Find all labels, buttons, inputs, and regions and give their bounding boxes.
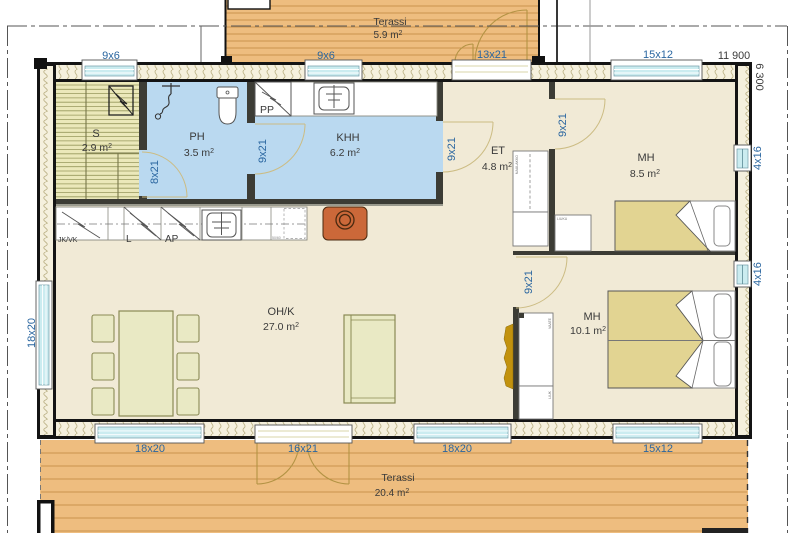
svg-text:OH/K: OH/K xyxy=(268,306,296,318)
svg-text:6 300: 6 300 xyxy=(753,63,765,91)
svg-text:KHH: KHH xyxy=(336,132,359,144)
svg-text:9x21: 9x21 xyxy=(446,137,458,161)
svg-text:9x6: 9x6 xyxy=(317,50,335,62)
svg-text:Terassi: Terassi xyxy=(381,472,414,484)
svg-text:PH: PH xyxy=(189,131,204,143)
svg-text:4x16: 4x16 xyxy=(752,262,764,286)
svg-text:9x21: 9x21 xyxy=(557,113,569,137)
svg-text:9x21: 9x21 xyxy=(523,270,535,294)
svg-text:4x16: 4x16 xyxy=(752,146,764,170)
svg-text:9x21: 9x21 xyxy=(257,139,269,163)
svg-text:18x20: 18x20 xyxy=(135,443,165,455)
svg-text:13x21: 13x21 xyxy=(477,49,507,61)
svg-text:8x21: 8x21 xyxy=(149,160,161,184)
svg-text:18x20: 18x20 xyxy=(442,443,472,455)
svg-text:AP: AP xyxy=(165,234,179,245)
svg-text:LIUKU: LIUKU xyxy=(557,217,568,221)
svg-text:20.4 m2: 20.4 m2 xyxy=(375,488,410,500)
svg-text:NAULAKKO: NAULAKKO xyxy=(515,155,519,174)
svg-text:L: L xyxy=(126,234,132,245)
svg-text:11 900: 11 900 xyxy=(718,50,750,62)
svg-text:ET: ET xyxy=(491,145,505,157)
svg-text:JK/VK: JK/VK xyxy=(58,237,78,244)
svg-text:MH: MH xyxy=(637,152,654,164)
svg-text:S: S xyxy=(92,128,99,140)
svg-text:6.2 m2: 6.2 m2 xyxy=(330,147,360,159)
svg-text:2.9 m2: 2.9 m2 xyxy=(82,142,112,154)
svg-text:LIUK: LIUK xyxy=(548,390,552,398)
svg-text:Terassi: Terassi xyxy=(373,16,406,28)
svg-text:18x20: 18x20 xyxy=(26,318,38,348)
svg-text:3.5 m2: 3.5 m2 xyxy=(184,147,214,159)
svg-text:9x6: 9x6 xyxy=(102,50,120,62)
svg-text:50/60: 50/60 xyxy=(272,236,281,240)
svg-text:5.9 m2: 5.9 m2 xyxy=(374,30,403,42)
svg-text:27.0 m2: 27.0 m2 xyxy=(263,321,299,333)
svg-text:4.8 m2: 4.8 m2 xyxy=(482,161,512,173)
svg-text:16x21: 16x21 xyxy=(288,443,318,455)
svg-text:15x12: 15x12 xyxy=(643,443,673,455)
svg-text:MH: MH xyxy=(583,311,600,323)
svg-text:PP: PP xyxy=(260,104,274,116)
svg-text:VAATE: VAATE xyxy=(548,317,552,329)
svg-text:10.1 m2: 10.1 m2 xyxy=(570,325,606,337)
svg-text:8.5 m2: 8.5 m2 xyxy=(630,168,660,180)
svg-text:15x12: 15x12 xyxy=(643,49,673,61)
